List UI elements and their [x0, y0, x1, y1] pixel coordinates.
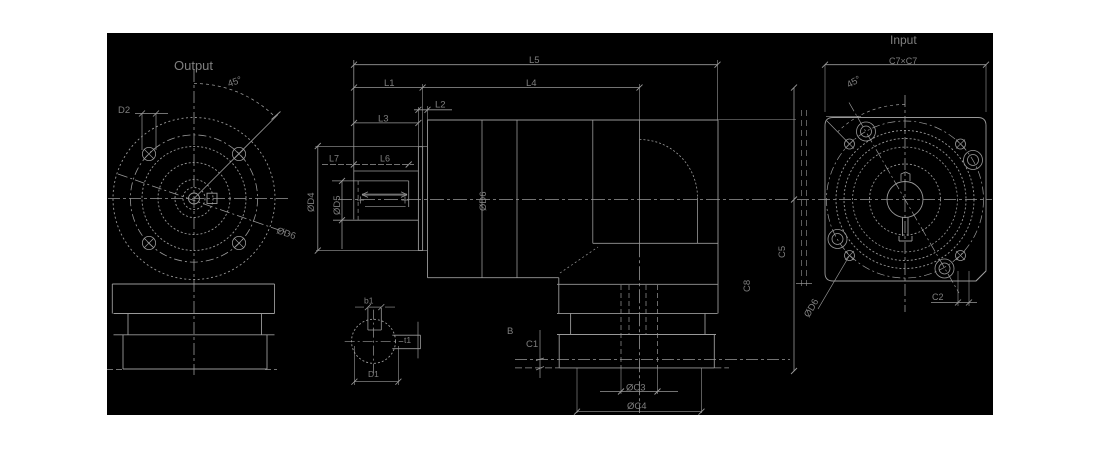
svg-text:ØD6: ØD6 [478, 191, 489, 211]
svg-text:b1: b1 [364, 296, 374, 306]
svg-text:L1: L1 [384, 78, 395, 89]
svg-text:D2: D2 [118, 105, 130, 116]
svg-text:Input: Input [890, 33, 917, 47]
svg-text:B: B [507, 326, 513, 337]
svg-text:C2: C2 [932, 292, 944, 302]
svg-text:L2: L2 [435, 100, 446, 111]
svg-text:C5: C5 [777, 246, 788, 258]
svg-text:L3: L3 [378, 114, 389, 125]
svg-text:D1: D1 [368, 369, 379, 379]
svg-text:L7: L7 [329, 154, 339, 164]
svg-text:ØC3: ØC3 [626, 383, 646, 394]
svg-text:L5: L5 [529, 55, 540, 66]
svg-text:L4: L4 [526, 78, 537, 89]
svg-text:ØC4: ØC4 [627, 401, 647, 412]
svg-text:ØD4: ØD4 [306, 192, 317, 212]
svg-text:ØD5: ØD5 [332, 195, 343, 215]
svg-text:L6: L6 [380, 154, 390, 164]
svg-text:C1: C1 [526, 339, 538, 350]
svg-text:C8: C8 [742, 280, 753, 292]
svg-text:t1: t1 [404, 335, 411, 345]
